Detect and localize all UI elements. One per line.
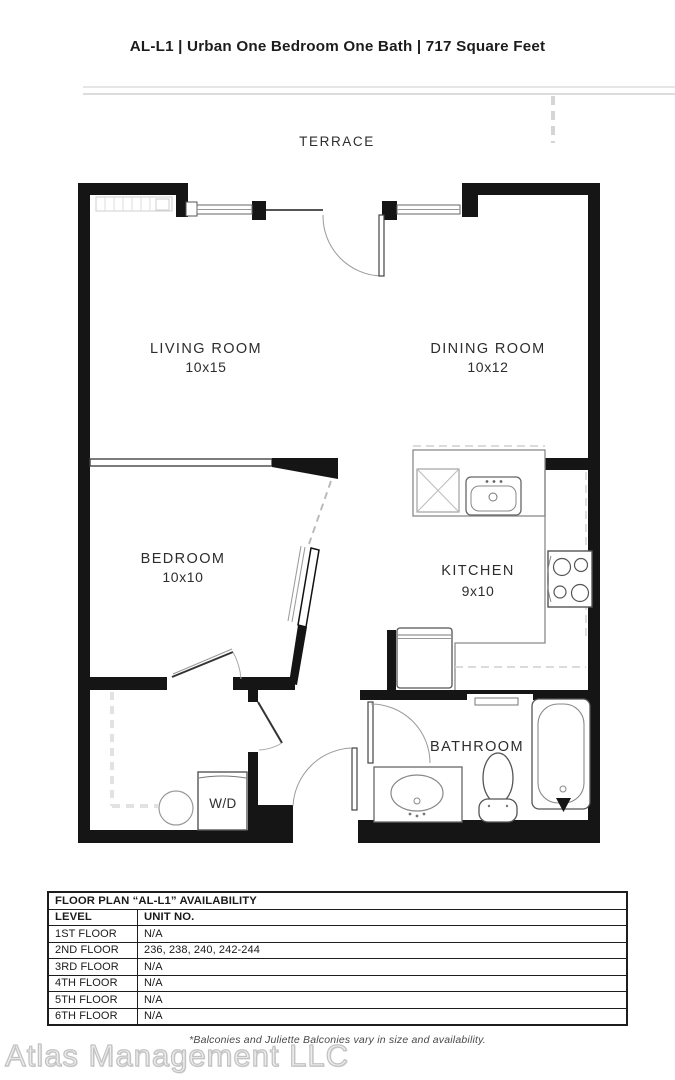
bedroom-door-swing-arc bbox=[233, 652, 241, 679]
terrace-door-swing-arc bbox=[323, 215, 382, 276]
bath-shelf-niche bbox=[475, 698, 518, 705]
heater-end-box bbox=[156, 199, 169, 210]
bedroom-doorway bbox=[78, 649, 295, 690]
bedroom-glass-wall bbox=[90, 459, 272, 466]
bedroom-divider bbox=[90, 458, 338, 685]
closet-door-swing-arc bbox=[259, 743, 282, 750]
toilet-bolt bbox=[506, 805, 508, 807]
sliding-door-track-dashed bbox=[309, 481, 331, 544]
wall-left bbox=[78, 183, 90, 843]
fridge-wall-stub bbox=[387, 630, 396, 690]
living-room-dims: 10x15 bbox=[185, 359, 226, 375]
dining-room-dims: 10x12 bbox=[467, 359, 508, 375]
facade-openings bbox=[186, 202, 460, 276]
vanity-drain bbox=[414, 798, 420, 804]
level-cell: 2ND FLOOR bbox=[48, 942, 138, 959]
faucet-dot bbox=[409, 813, 412, 816]
bedroom-door-leaf-line bbox=[173, 649, 232, 674]
toilet-base bbox=[479, 799, 517, 822]
window-post bbox=[252, 201, 266, 220]
wall-stub bbox=[248, 690, 258, 702]
table-row: 6TH FLOOR N/A bbox=[48, 1008, 627, 1025]
sink-drain bbox=[489, 493, 497, 501]
units-cell: 236, 238, 240, 242-244 bbox=[138, 942, 628, 959]
tub-drain bbox=[560, 786, 566, 792]
table-row: 5TH FLOOR N/A bbox=[48, 992, 627, 1009]
bathroom-door-leaf bbox=[368, 702, 373, 763]
kitchen-dims: 9x10 bbox=[462, 583, 495, 599]
col-header-unit-no: UNIT NO. bbox=[138, 909, 628, 926]
vanity-sink bbox=[391, 775, 443, 811]
washer-dryer-label: W/D bbox=[209, 796, 236, 811]
terrace-area: TERRACE bbox=[83, 87, 675, 149]
col-header-level: LEVEL bbox=[48, 909, 138, 926]
bathroom-area bbox=[374, 699, 590, 822]
footnote: *Balconies and Juliette Balconies vary i… bbox=[0, 1034, 675, 1046]
table-title: FLOOR PLAN “AL-L1” AVAILABILITY bbox=[48, 892, 627, 909]
level-cell: 5TH FLOOR bbox=[48, 992, 138, 1009]
floor-plan-drawing: TERRACE bbox=[0, 0, 675, 870]
bedroom-label: BEDROOM bbox=[141, 551, 226, 567]
table-row: 1ST FLOOR N/A bbox=[48, 926, 627, 943]
wall-step bbox=[462, 195, 478, 217]
closet-wall bbox=[248, 752, 258, 812]
faucet-dot bbox=[416, 815, 419, 818]
baseboard-heater bbox=[96, 197, 172, 211]
closet-door-leaf bbox=[258, 702, 282, 743]
living-room-label: LIVING ROOM bbox=[150, 341, 262, 357]
units-cell: N/A bbox=[138, 959, 628, 976]
angled-wall-wedge bbox=[272, 458, 338, 479]
bedroom-door-leaf bbox=[172, 652, 233, 677]
burner bbox=[575, 559, 588, 572]
level-cell: 4TH FLOOR bbox=[48, 975, 138, 992]
units-cell: N/A bbox=[138, 1008, 628, 1025]
faucet-dot bbox=[423, 813, 426, 816]
kitchen-label: KITCHEN bbox=[441, 563, 514, 579]
bedroom-dims: 10x10 bbox=[162, 569, 203, 585]
refrigerator bbox=[397, 628, 452, 688]
table-header-row: LEVEL UNIT NO. bbox=[48, 909, 627, 926]
units-cell: N/A bbox=[138, 926, 628, 943]
window-end-cap bbox=[186, 202, 197, 216]
table-row: 4TH FLOOR N/A bbox=[48, 975, 627, 992]
sliding-door-panel bbox=[298, 548, 319, 627]
faucet-dot bbox=[486, 480, 489, 483]
closet-hall: W/D bbox=[112, 690, 293, 843]
entry-door-swing-arc bbox=[293, 748, 352, 806]
terrace-label: TERRACE bbox=[299, 134, 375, 149]
bathroom-door-swing-arc bbox=[371, 704, 430, 763]
burner bbox=[554, 586, 566, 598]
table-row: 3RD FLOOR N/A bbox=[48, 959, 627, 976]
toilet-bolt bbox=[488, 805, 490, 807]
burner bbox=[572, 585, 589, 602]
angled-wall bbox=[289, 625, 307, 685]
entry-jog-wall bbox=[248, 805, 293, 843]
wall bbox=[233, 677, 295, 690]
dining-room-label: DINING ROOM bbox=[430, 341, 545, 357]
table-row: 2ND FLOOR 236, 238, 240, 242-244 bbox=[48, 942, 627, 959]
wall-bottom-right bbox=[358, 820, 600, 843]
units-cell: N/A bbox=[138, 992, 628, 1009]
wall-top-left bbox=[78, 183, 188, 195]
wall-top-right bbox=[462, 183, 600, 195]
terrace-door-leaf bbox=[379, 215, 384, 276]
availability-table: FLOOR PLAN “AL-L1” AVAILABILITY LEVEL UN… bbox=[47, 891, 628, 1026]
bathroom-label: BATHROOM bbox=[430, 739, 524, 755]
wall bbox=[78, 677, 167, 690]
table-title-row: FLOOR PLAN “AL-L1” AVAILABILITY bbox=[48, 892, 627, 909]
laundry-basket bbox=[159, 791, 193, 825]
burner bbox=[554, 559, 571, 576]
level-cell: 6TH FLOOR bbox=[48, 1008, 138, 1025]
faucet-dot bbox=[493, 480, 496, 483]
kitchen-wall bbox=[545, 458, 600, 470]
faucet-dot bbox=[500, 480, 503, 483]
entry-door-leaf bbox=[352, 748, 357, 810]
level-cell: 3RD FLOOR bbox=[48, 959, 138, 976]
wall-bottom-left bbox=[78, 830, 258, 843]
toilet-bowl bbox=[483, 753, 513, 803]
units-cell: N/A bbox=[138, 975, 628, 992]
level-cell: 1ST FLOOR bbox=[48, 926, 138, 943]
